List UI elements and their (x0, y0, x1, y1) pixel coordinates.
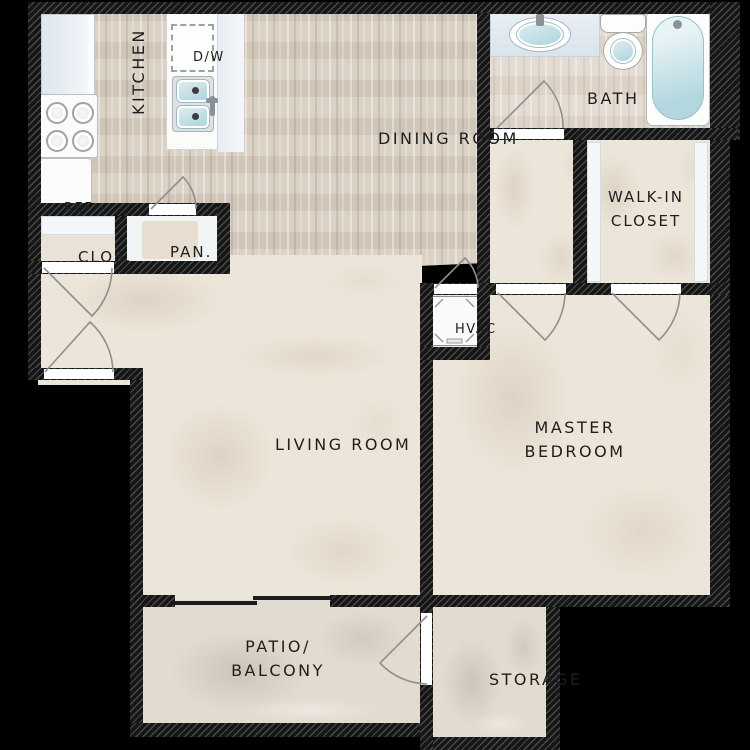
master-bedroom-label: MASTER BEDROOM (524, 416, 625, 464)
closet-door-swing (44, 268, 112, 316)
patio-balcony-label: PATIO/ BALCONY (231, 635, 325, 683)
bath-door-swing (497, 81, 563, 128)
bedroom-door-swing (498, 293, 565, 340)
pantry-door-swing (151, 177, 196, 209)
walk-in-door-swing (612, 293, 680, 340)
entry-door-swing (45, 322, 113, 372)
hvac-door-swing (435, 258, 478, 288)
door-swing-arcs (0, 0, 750, 750)
storage-door-swing (380, 616, 427, 684)
walk-in-closet-label: WALK-IN CLOSET (608, 185, 684, 233)
floor-plan: KITCHEN DINING ROOM BATH WALK-IN CLOSET … (0, 0, 750, 750)
